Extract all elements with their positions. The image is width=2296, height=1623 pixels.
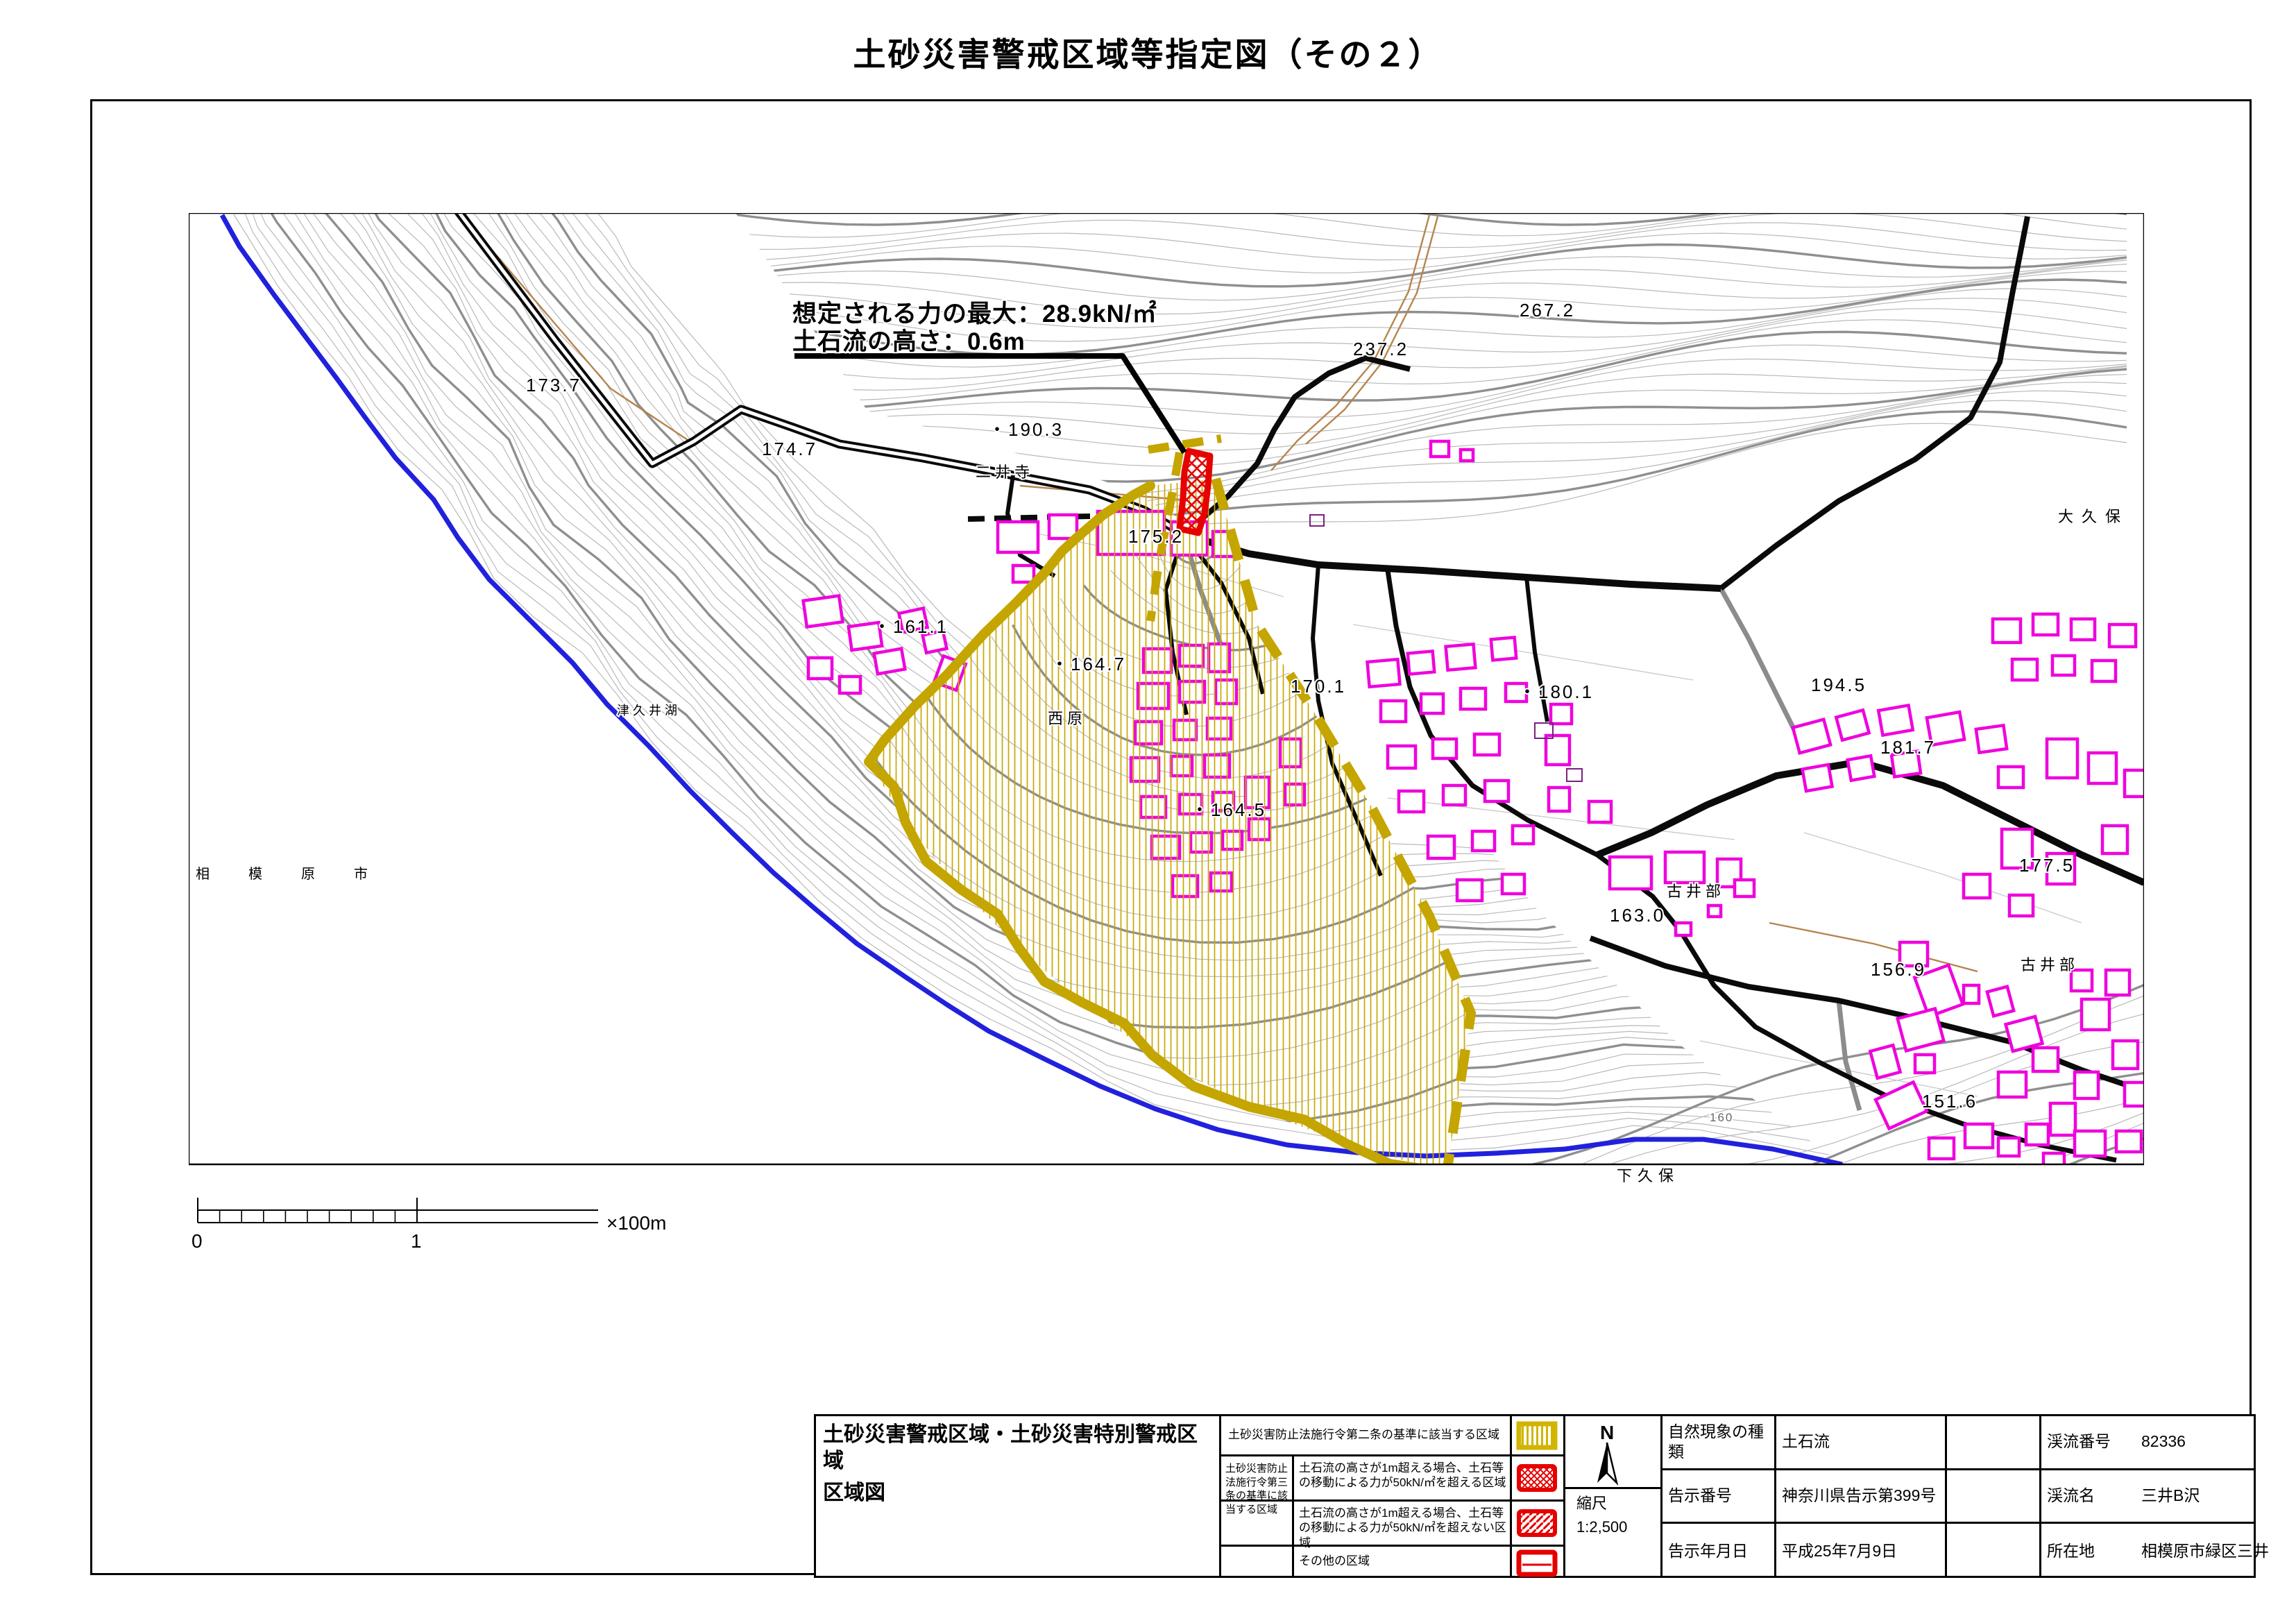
legend-symbol-other-zone-icon <box>1515 1549 1558 1582</box>
map-label: 156.9 <box>1871 959 1926 980</box>
scale-bar: 01×100m <box>192 1198 666 1252</box>
scale-label: 縮尺 <box>1576 1494 1607 1513</box>
north-arrow-icon <box>1590 1440 1624 1489</box>
document-page: 土砂災害警戒区域等指定図（その２） 想定される力の最大：28.9kN/㎡土石流の… <box>0 0 2296 1623</box>
table-divider <box>1660 1522 2254 1524</box>
legend-row4-label: その他の区域 <box>1299 1554 1507 1568</box>
legend-row1-label: 土砂災害防止法施行令第二条の基準に該当する区域 <box>1228 1427 1507 1442</box>
annotation-max-force: 想定される力の最大：28.9kN/㎡ <box>792 300 1157 328</box>
map-label: ・180.1 <box>1518 681 1594 702</box>
info-label-phenomenon: 自然現象の種類 <box>1668 1422 1771 1462</box>
map-label: 194.5 <box>1811 674 1866 695</box>
map-sheet-title-line2: 区域図 <box>823 1480 1211 1506</box>
scale-bar-one: 1 <box>411 1230 422 1252</box>
map-label: 170.1 <box>1291 676 1346 697</box>
legend-symbol-special-zone-over50-icon <box>1515 1463 1558 1496</box>
info-label-notice-date: 告示年月日 <box>1668 1541 1771 1561</box>
map-label: 151.6 <box>1922 1091 1978 1112</box>
table-divider <box>1219 1416 1221 1576</box>
map-label: 181.7 <box>1880 737 1936 758</box>
legend-symbol-special-zone-under50-icon <box>1515 1509 1558 1541</box>
map-label: 163.0 <box>1610 905 1665 926</box>
info-label-stream-no: 渓流番号 <box>2047 1431 2137 1452</box>
info-value-stream-name: 三井B沢 <box>2141 1486 2296 1506</box>
info-value-notice-no: 神奈川県告示第399号 <box>1782 1486 1945 1506</box>
info-value-stream-no: 82336 <box>2141 1431 2296 1452</box>
map-label: 174.7 <box>762 439 817 459</box>
info-label-location: 所在地 <box>2047 1541 2137 1561</box>
info-value-location: 相模原市緑区三井 <box>2141 1541 2296 1561</box>
map-canvas: 想定される力の最大：28.9kN/㎡土石流の高さ：0.6m津久井湖相模原市大久保… <box>189 213 2144 1268</box>
map-label: 267.2 <box>1520 300 1575 321</box>
table-divider <box>1660 1468 2254 1470</box>
table-divider <box>1660 1416 1663 1576</box>
map-label: 古井部 <box>1667 883 1725 900</box>
annotation-flow-height: 土石流の高さ：0.6m <box>792 328 1026 355</box>
legend-symbol-warning-zone-icon <box>1515 1421 1558 1454</box>
map-label: 下久保 <box>1617 1167 1679 1184</box>
map-label: 二井寺 <box>976 464 1034 481</box>
map-label: 大久保 <box>2058 508 2129 525</box>
map-label: 175.2 <box>1128 526 1184 547</box>
legend-info-table: 土砂災害警戒区域・土砂災害特別警戒区域 区域図 土砂災害防止法施行令第二条の基準… <box>814 1414 2256 1578</box>
scale-bar-unit: ×100m <box>606 1212 666 1234</box>
table-divider <box>2039 1416 2041 1576</box>
legend-row3-label: 土石流の高さが1m超える場合、土石等の移動による力が50kN/㎡を超えない区域 <box>1299 1506 1507 1550</box>
scale-value: 1:2,500 <box>1576 1518 1627 1537</box>
map-label: 相模原市 <box>196 866 407 882</box>
info-label-stream-name: 渓流名 <box>2047 1486 2137 1506</box>
map-label: ・164.7 <box>1051 654 1126 674</box>
info-label-notice-no: 告示番号 <box>1668 1486 1771 1506</box>
map-label: 173.7 <box>526 375 581 396</box>
map-label: ・161.1 <box>873 616 949 637</box>
table-divider <box>1510 1416 1512 1576</box>
map-label: 160 <box>1710 1111 1733 1124</box>
map-label: 177.5 <box>2019 855 2075 876</box>
table-divider <box>1292 1454 1294 1576</box>
info-value-notice-date: 平成25年7月9日 <box>1782 1541 1945 1561</box>
map-label: 津久井湖 <box>617 704 681 717</box>
table-divider <box>1219 1454 1565 1456</box>
map-label: ・190.3 <box>988 419 1064 440</box>
legend-row2-label: 土石流の高さが1m超える場合、土石等の移動による力が50kN/㎡を超える区域 <box>1299 1461 1507 1490</box>
table-divider <box>1563 1416 1565 1576</box>
info-value-phenomenon: 土石流 <box>1782 1431 1941 1452</box>
legend-group-label: 土砂災害防止法施行令第三条の基準に該当する区域 <box>1225 1462 1289 1516</box>
map-label: 237.2 <box>1353 339 1409 359</box>
scale-bar-zero: 0 <box>192 1230 203 1252</box>
page-title: 土砂災害警戒区域等指定図（その２） <box>0 28 2296 76</box>
map-label: ・164.5 <box>1191 799 1266 820</box>
table-divider <box>1774 1416 1776 1576</box>
table-divider <box>1945 1416 1947 1576</box>
map-label: 西原 <box>1048 710 1087 727</box>
map-sheet-title-line1: 土砂災害警戒区域・土砂災害特別警戒区域 <box>823 1422 1211 1474</box>
map-label: 古井部 <box>2021 956 2079 974</box>
